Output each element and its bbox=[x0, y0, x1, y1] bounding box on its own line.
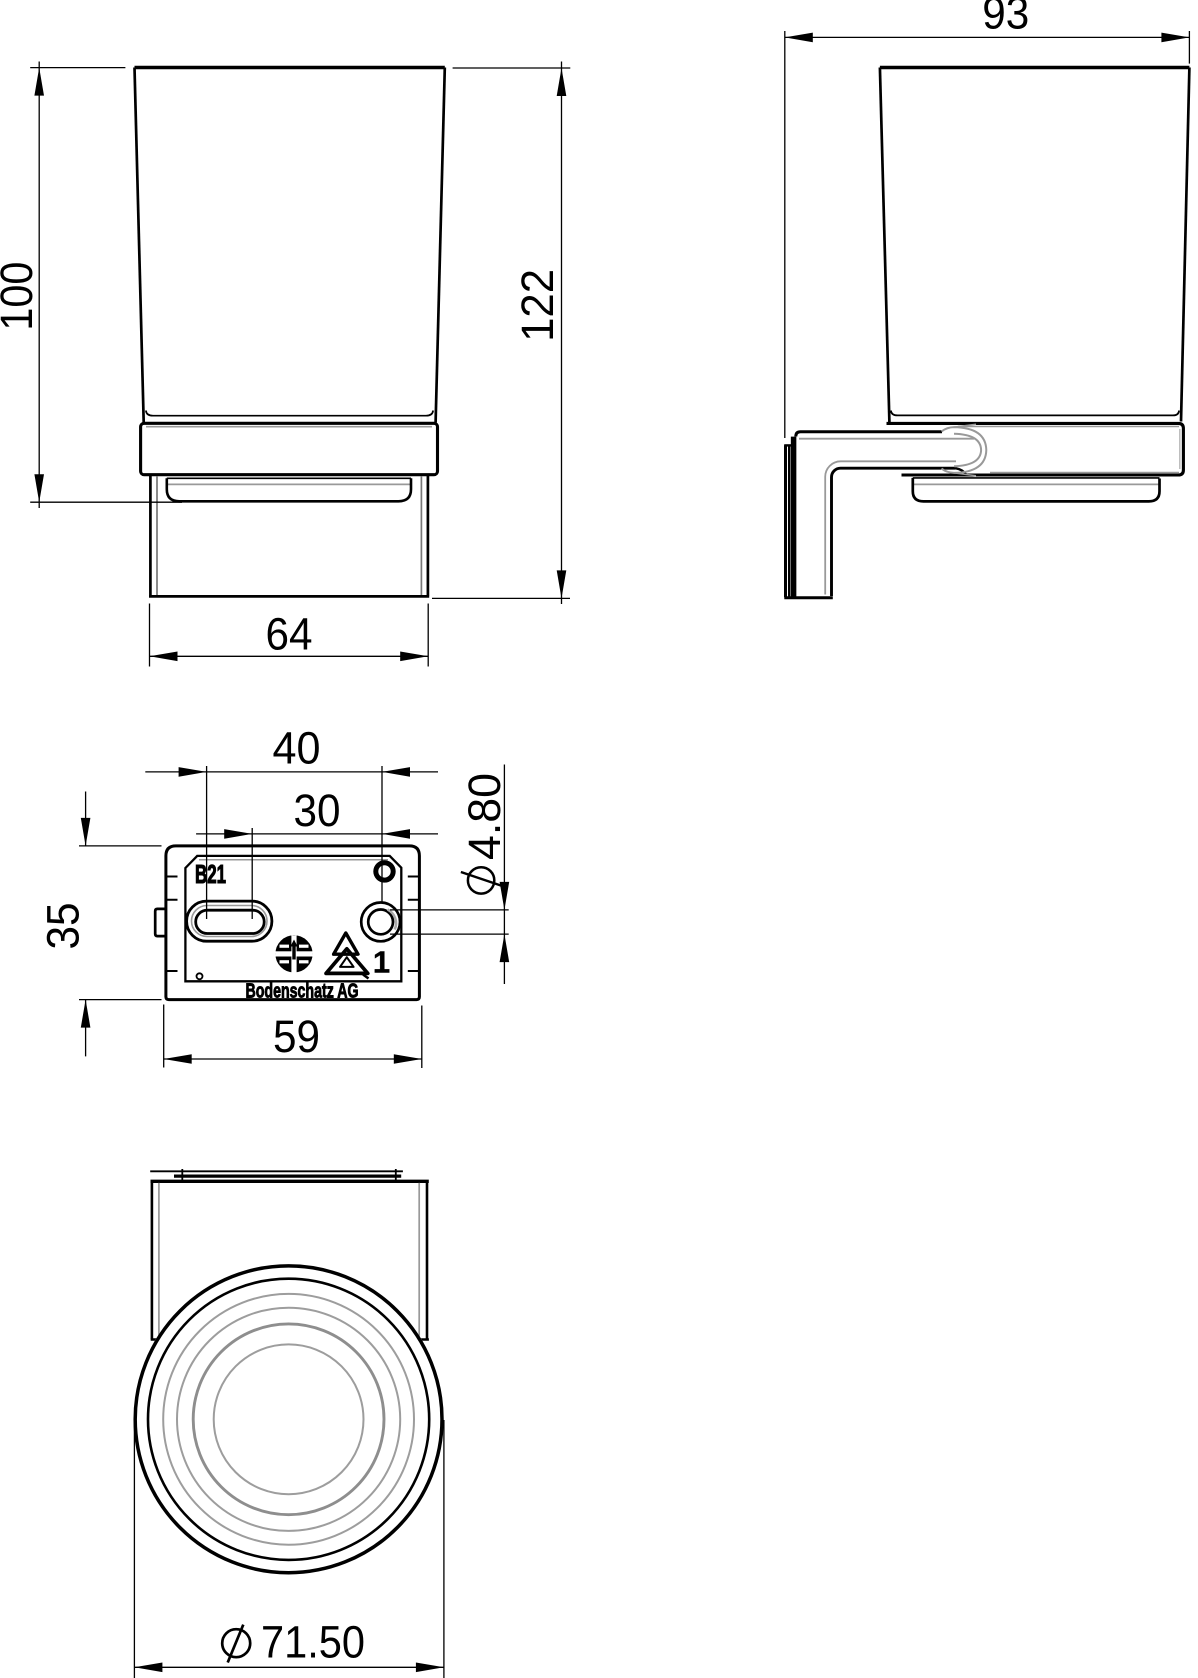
svg-text:40: 40 bbox=[273, 722, 321, 773]
svg-text:35: 35 bbox=[37, 903, 88, 950]
svg-text:1: 1 bbox=[373, 944, 390, 979]
svg-text:93: 93 bbox=[982, 0, 1029, 39]
svg-text:100: 100 bbox=[0, 262, 42, 331]
svg-text:64: 64 bbox=[266, 608, 313, 659]
svg-text:59: 59 bbox=[273, 1011, 320, 1062]
svg-text:4.80: 4.80 bbox=[459, 773, 510, 860]
svg-text:Bodenschatz AG: Bodenschatz AG bbox=[246, 981, 359, 1003]
svg-text:B21: B21 bbox=[195, 859, 226, 889]
svg-text:30: 30 bbox=[294, 785, 341, 836]
svg-text:71.50: 71.50 bbox=[261, 1617, 365, 1668]
svg-text:122: 122 bbox=[512, 269, 563, 342]
